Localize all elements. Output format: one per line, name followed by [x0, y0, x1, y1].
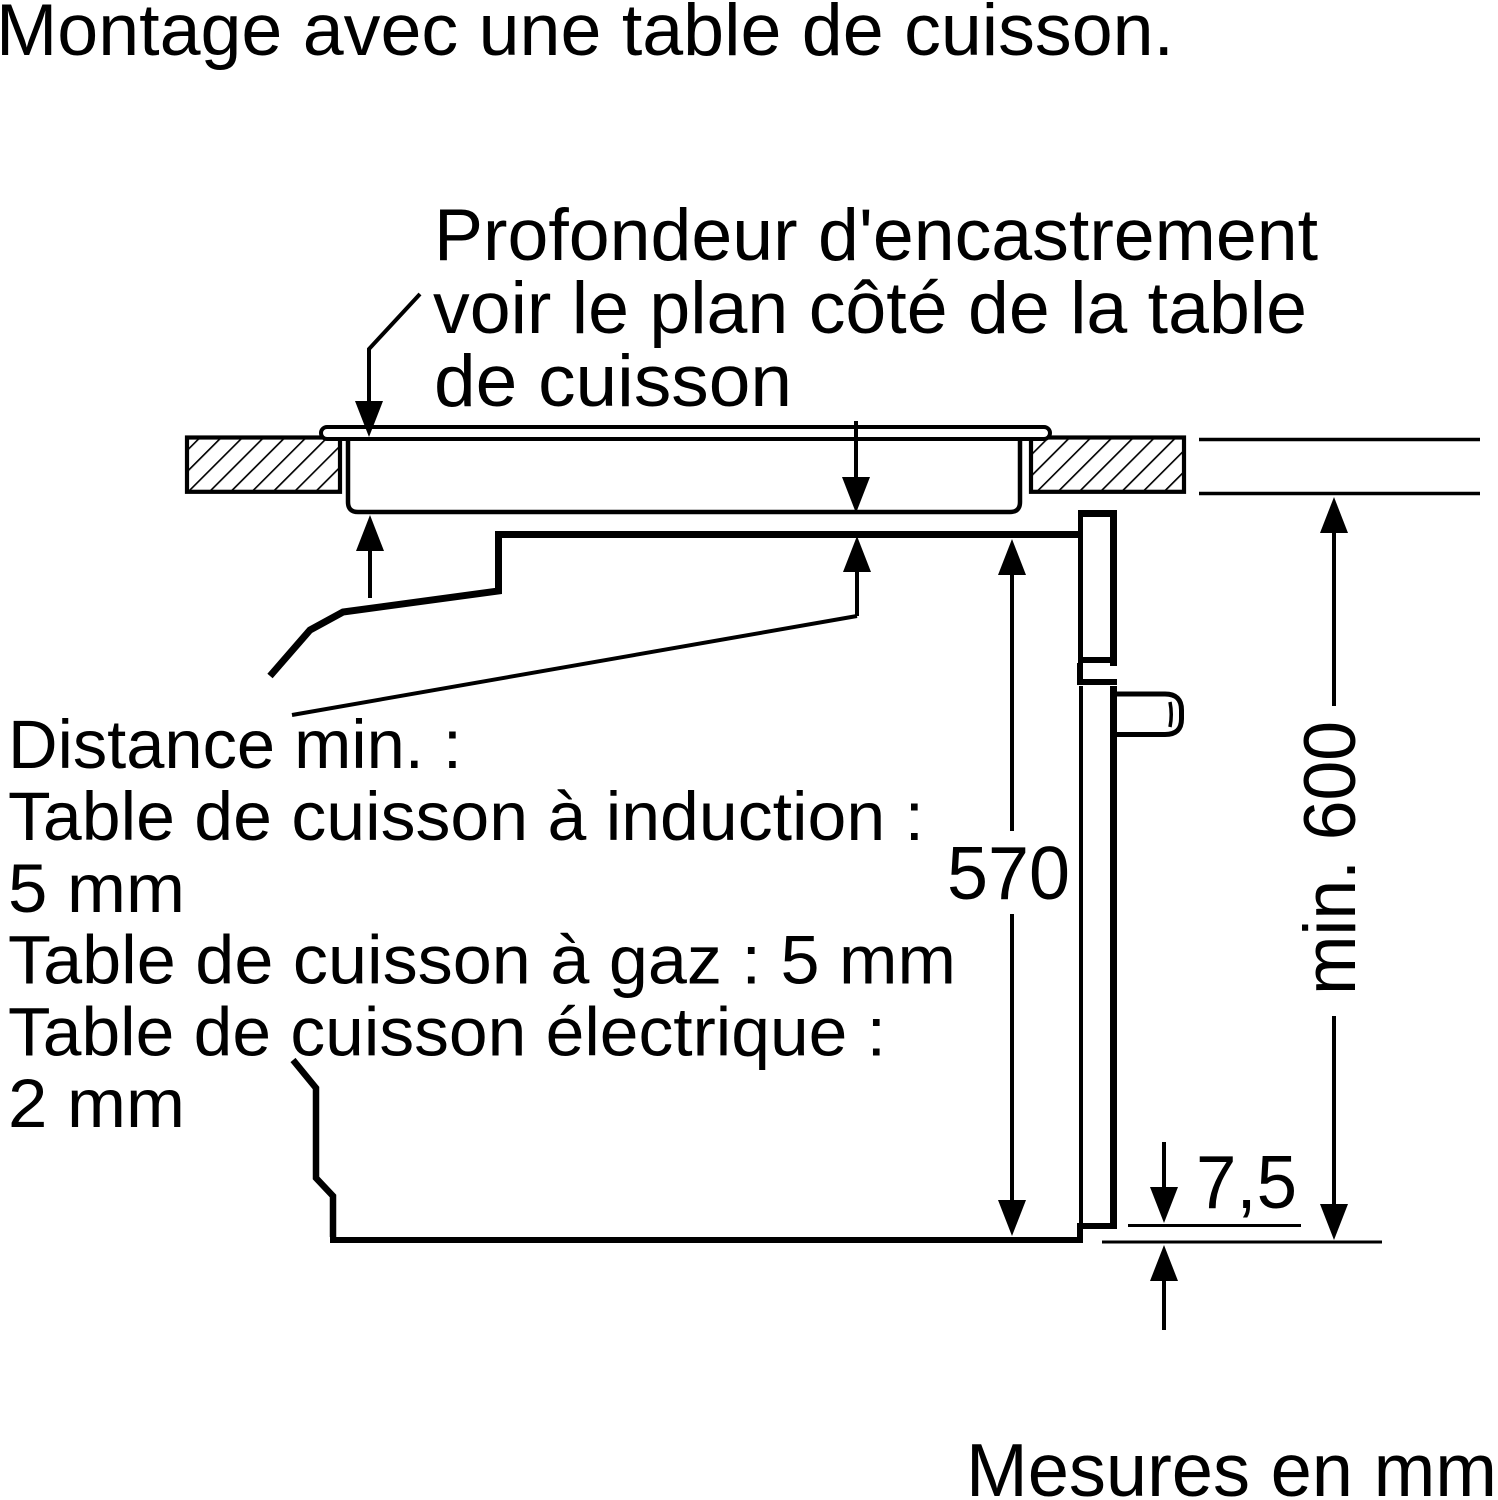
svg-text:Distance min. :: Distance min. : [8, 706, 462, 783]
svg-text:Mesures en mm: Mesures en mm [966, 1428, 1497, 1500]
svg-text:Table de cuisson à induction :: Table de cuisson à induction : [8, 778, 924, 855]
svg-text:5 mm: 5 mm [8, 850, 185, 927]
svg-text:Montage avec une table de cuis: Montage avec une table de cuisson. [0, 0, 1174, 71]
svg-text:2 mm: 2 mm [8, 1065, 185, 1142]
svg-text:7,5: 7,5 [1196, 1140, 1297, 1224]
svg-text:de cuisson: de cuisson [434, 341, 792, 422]
svg-text:Table de cuisson électrique :: Table de cuisson électrique : [8, 994, 886, 1071]
svg-text:Profondeur d'encastrement: Profondeur d'encastrement [434, 195, 1318, 276]
svg-text:min. 600: min. 600 [1290, 721, 1371, 995]
svg-text:voir le plan côté de la table: voir le plan côté de la table [433, 268, 1307, 349]
svg-text:570: 570 [947, 831, 1070, 915]
svg-text:Table de cuisson à gaz : 5 mm: Table de cuisson à gaz : 5 mm [8, 922, 956, 999]
